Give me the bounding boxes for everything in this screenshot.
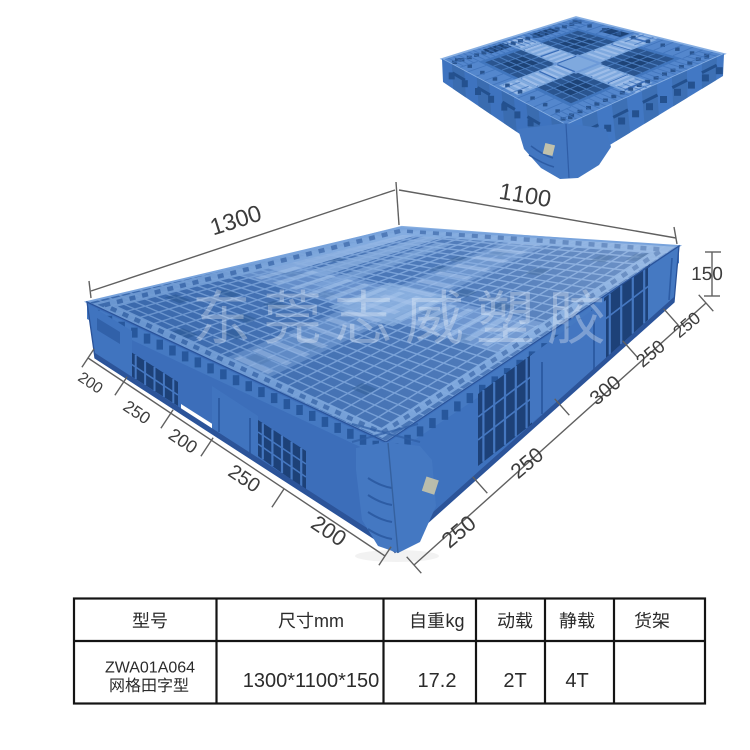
svg-text:2T: 2T xyxy=(503,670,526,692)
svg-text:ZWA01A064: ZWA01A064 xyxy=(105,660,195,677)
svg-text:mm: mm xyxy=(314,611,344,631)
svg-text:1300*1100*150: 1300*1100*150 xyxy=(243,670,379,692)
svg-text:kg: kg xyxy=(446,611,465,631)
svg-text:17.2: 17.2 xyxy=(418,670,457,692)
svg-text:4T: 4T xyxy=(565,670,588,692)
